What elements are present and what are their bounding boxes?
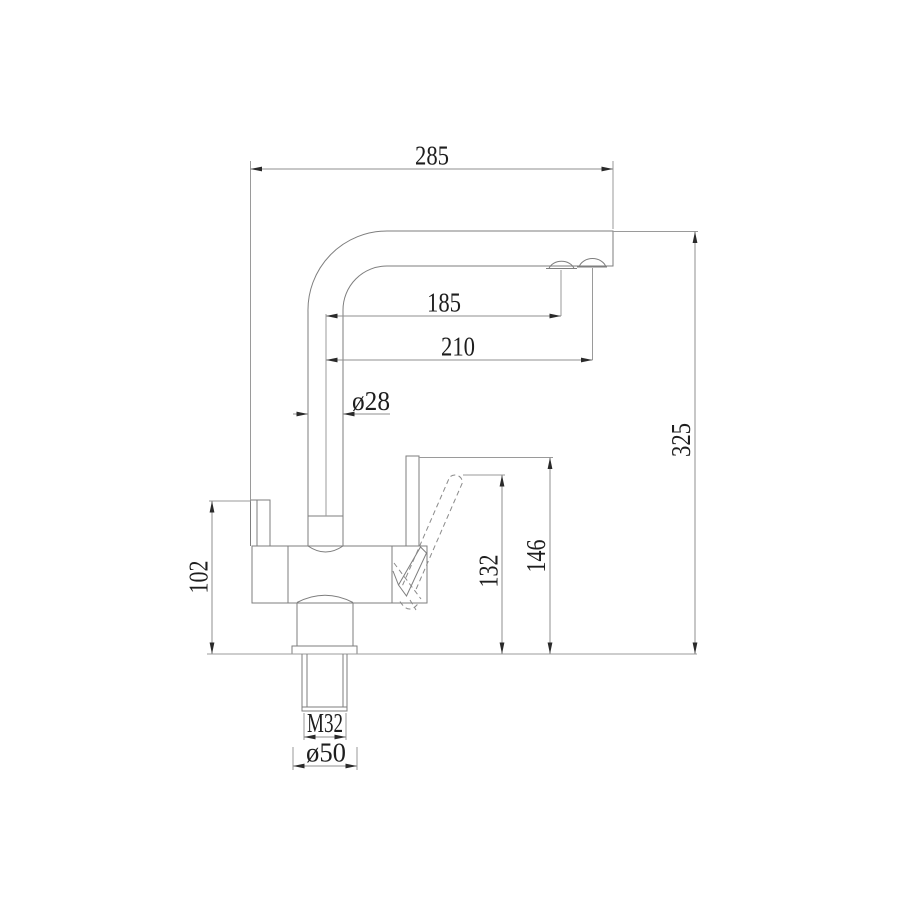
lever-mount-detail [399, 547, 427, 596]
dim-reach-to-aerator-label: 185 [427, 288, 461, 318]
stub-outline [302, 654, 347, 707]
dim-reach-to-spout-end-label: 210 [441, 332, 475, 362]
lever-dashed-tip-line [410, 600, 416, 610]
dim-lever-height-label: 146 [521, 540, 551, 573]
drawing-page: 285 185 210 ø28 [0, 0, 900, 900]
aerator-outlets [546, 259, 607, 269]
dim-overall-height: 325 [613, 232, 698, 655]
dim-body-side-height: 102 [184, 501, 252, 654]
dim-overall-reach-label: 285 [415, 141, 449, 171]
lever-dashed-outline [403, 475, 463, 591]
lever-dashed-position [394, 475, 462, 610]
side-handle [251, 500, 271, 546]
dim-base-diameter: ø50 [293, 738, 357, 771]
faucet-technical-drawing: 285 185 210 ø28 [0, 0, 900, 900]
dim-base-diameter-label: ø50 [306, 738, 346, 768]
neck-shoulder-arch [297, 595, 353, 602]
base-flange [292, 646, 357, 654]
main-lever [406, 456, 419, 546]
dim-overall-height-label: 325 [666, 423, 696, 457]
dim-overall-reach: 285 [251, 141, 614, 501]
dim-reach-to-aerator: 185 [326, 270, 561, 318]
threaded-stub [302, 654, 347, 711]
dim-thread-size: M32 [304, 708, 346, 740]
aerator-1-dome [549, 261, 574, 268]
dimension-annotations: 285 185 210 ø28 [184, 141, 699, 771]
dim-body-side-height-label: 102 [184, 561, 214, 594]
body-outline [252, 546, 427, 603]
dim-lever-tilted-height-label: 132 [474, 555, 504, 588]
dim-thread-size-label: M32 [307, 708, 343, 738]
dim-lever-tilted-height: 132 [463, 475, 505, 654]
spout-collar-curve [308, 546, 343, 552]
lever-mount-edge [393, 571, 399, 585]
dim-spout-tube-diameter-label: ø28 [352, 386, 390, 416]
